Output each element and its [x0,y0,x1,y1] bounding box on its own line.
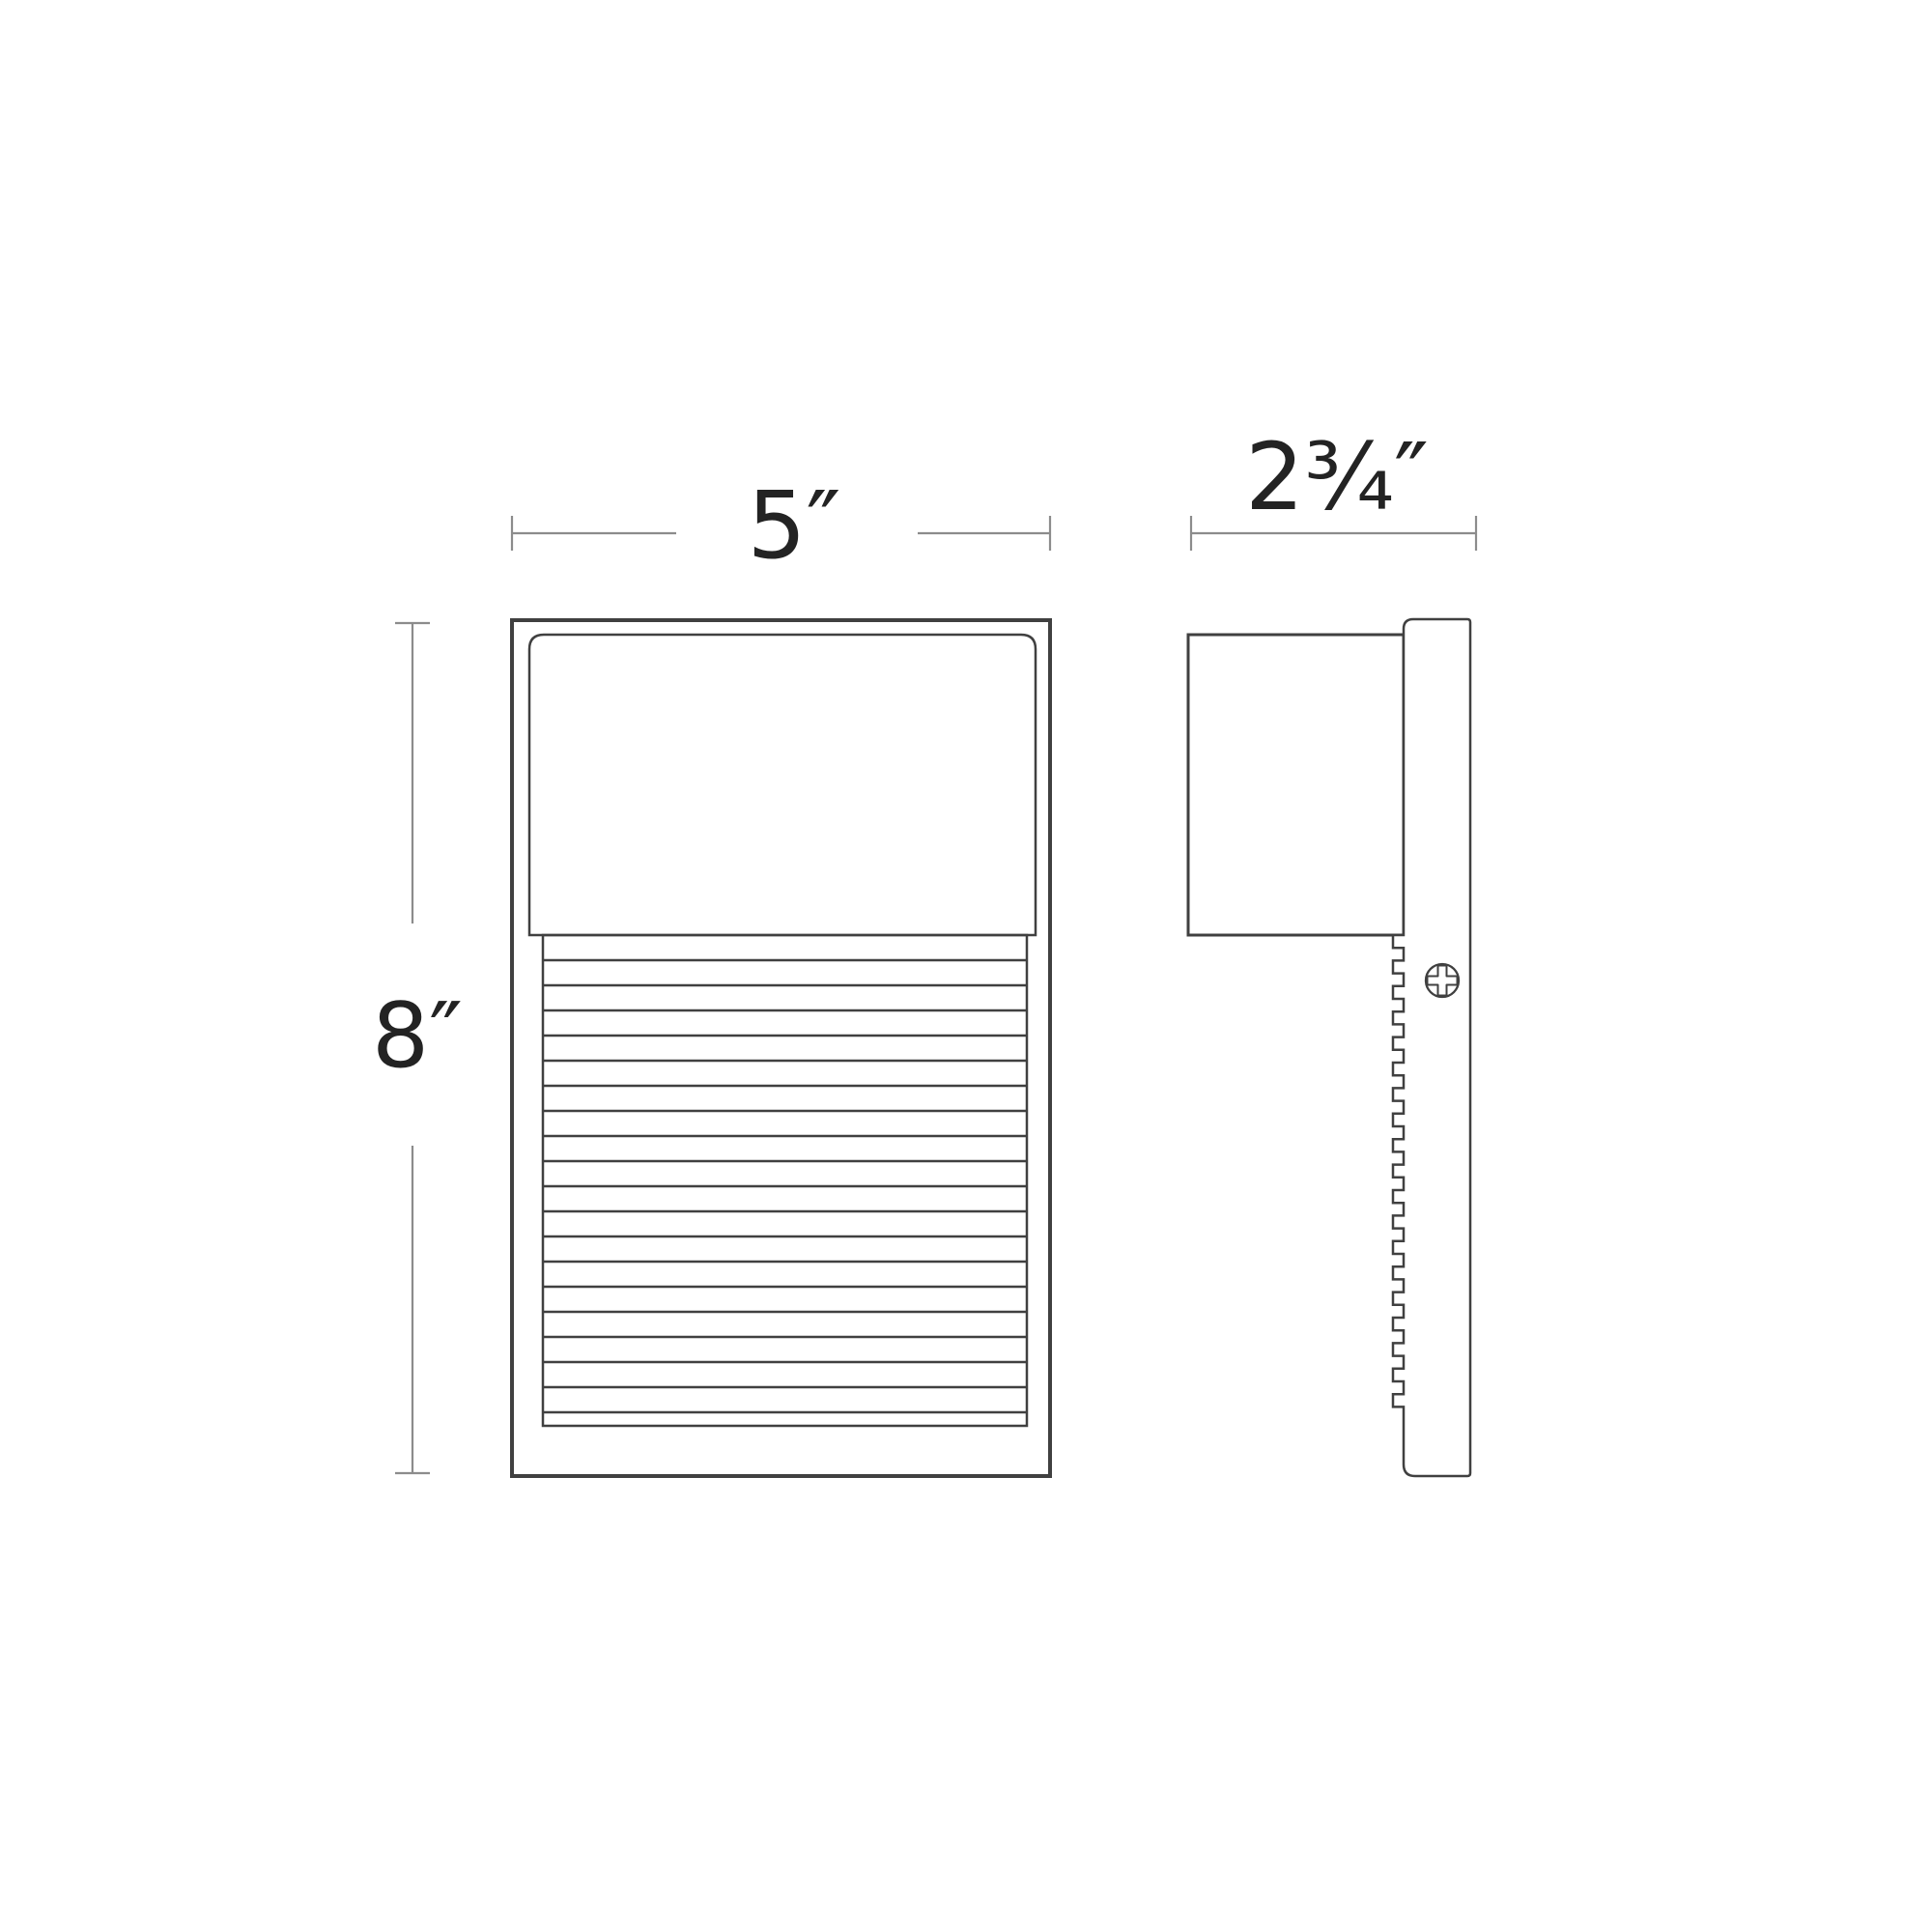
width-dimension: 5″ [512,471,1050,580]
front-outer-frame [512,620,1050,1476]
drawing-canvas: 5″ 2¾″ 8″ [0,0,1932,1932]
depth-dim-label: 2¾″ [1245,423,1429,531]
phillips-screw-icon [1426,964,1459,997]
louver-grill [543,960,1027,1412]
height-dim-label: 8″ [372,983,463,1088]
louver-grill-frame [543,935,1027,1426]
front-view [512,620,1050,1476]
dimension-diagram: 5″ 2¾″ 8″ [0,0,1932,1932]
mounting-plate [1393,619,1470,1476]
depth-dimension: 2¾″ [1191,423,1476,551]
side-view [1188,619,1470,1476]
width-dim-label: 5″ [748,471,841,580]
height-dimension: 8″ [372,623,463,1473]
side-lamp-body [1188,635,1404,935]
glass-panel [529,635,1036,935]
